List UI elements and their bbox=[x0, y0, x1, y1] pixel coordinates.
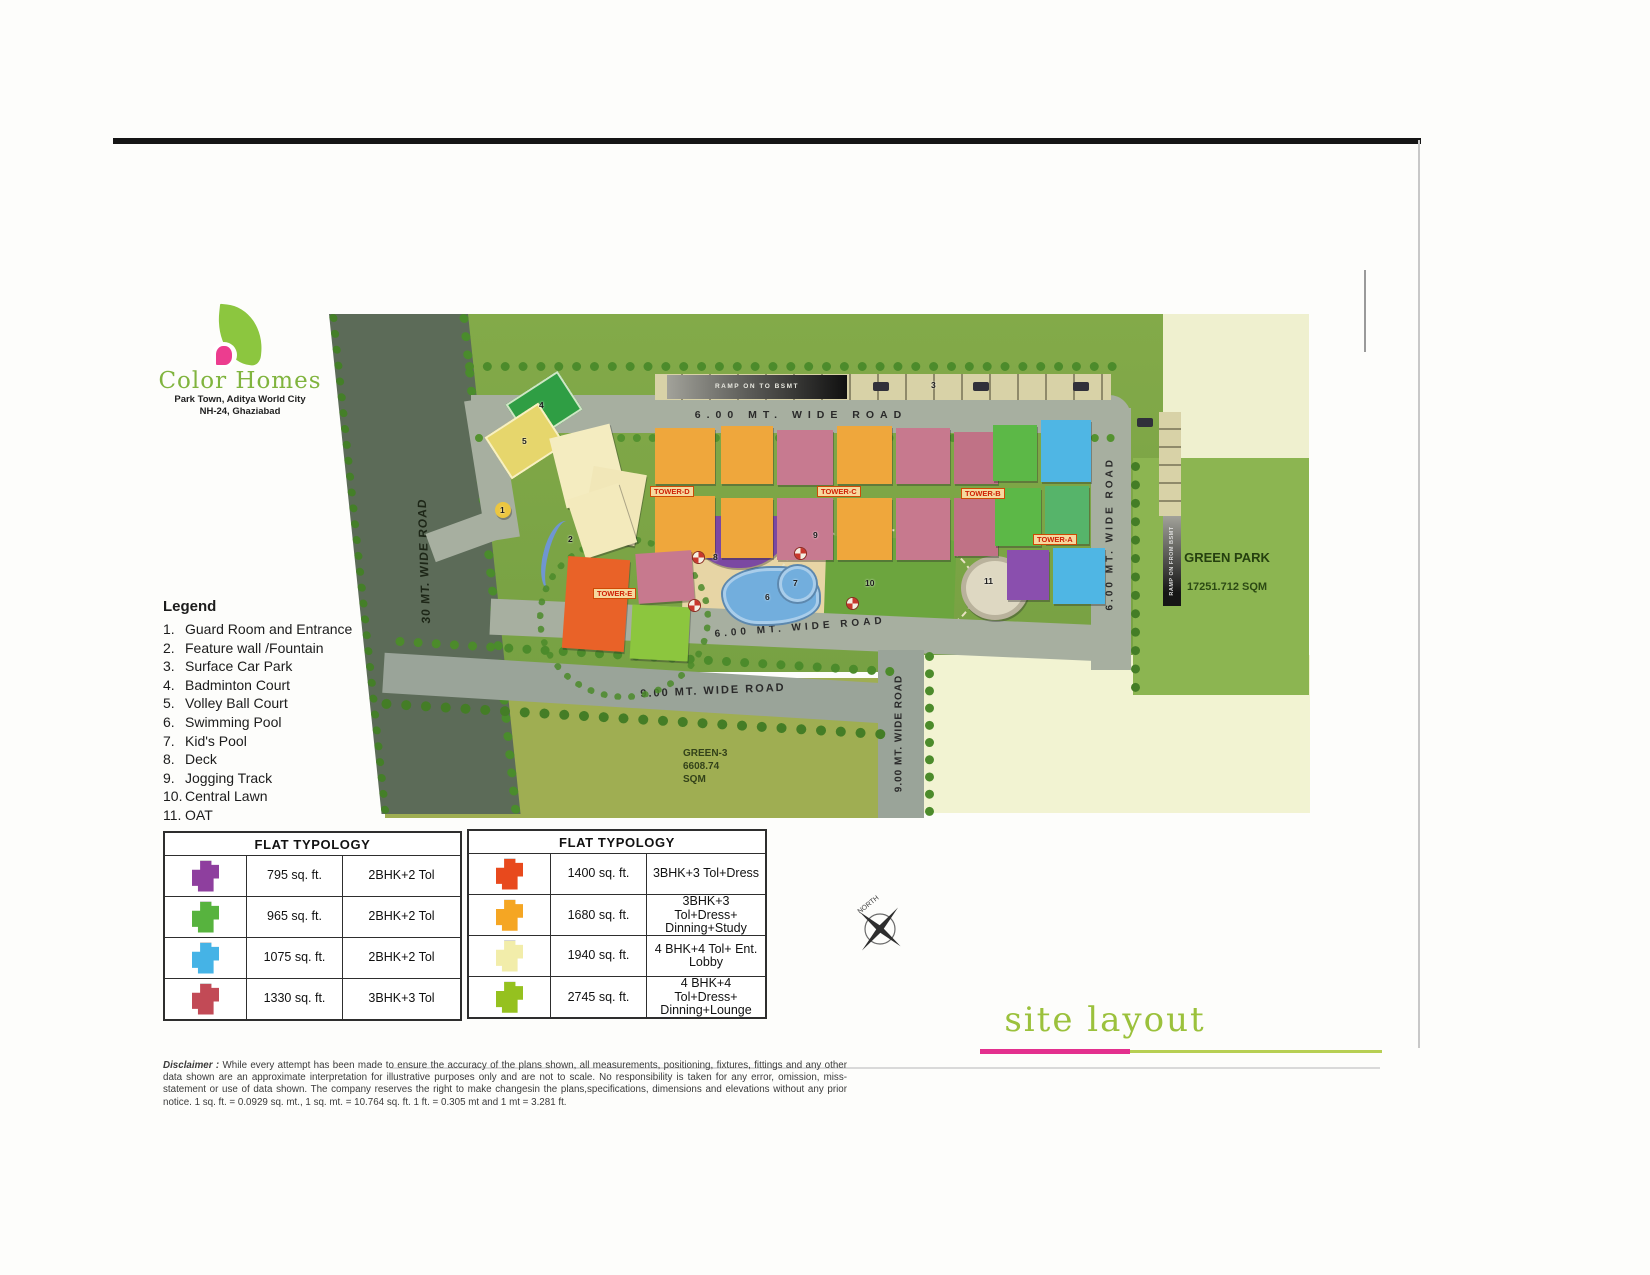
tower-b-block bbox=[896, 428, 950, 484]
flat-area: 1680 sq. ft. bbox=[551, 895, 647, 936]
basement-ramp-top: RAMP ON TO BSMT bbox=[667, 375, 847, 399]
car-icon bbox=[973, 382, 989, 391]
leaf-pink-petal bbox=[216, 346, 232, 365]
car-icon bbox=[1073, 382, 1089, 391]
flat-type: 3BHK+3 Tol+Dress+ Dinning+Study bbox=[647, 895, 765, 936]
brand-subtitle-1: Park Town, Aditya World City bbox=[150, 394, 330, 406]
tower-b-badge: TOWER-B bbox=[961, 488, 1005, 499]
table-row: 1330 sq. ft. 3BHK+3 Tol bbox=[165, 979, 460, 1019]
flat-area: 1075 sq. ft. bbox=[247, 938, 343, 978]
tower-d-block bbox=[655, 428, 715, 484]
table-row: 2745 sq. ft. 4 BHK+4 Tol+Dress+ Dinning+… bbox=[469, 977, 765, 1017]
flat-type: 3BHK+3 Tol+Dress bbox=[647, 854, 765, 894]
green3-unit-label: SQM bbox=[683, 774, 706, 785]
flat-typology-table-1: FLAT TYPOLOGY 795 sq. ft. 2BHK+2 Tol 965… bbox=[163, 831, 462, 1021]
green-park-label: GREEN PARK bbox=[1149, 550, 1305, 565]
flat-area: 795 sq. ft. bbox=[247, 856, 343, 896]
disclaimer: Disclaimer : While every attempt has bee… bbox=[163, 1060, 847, 1109]
disclaimer-label: Disclaimer : bbox=[163, 1060, 219, 1071]
marker-volleyball: 5 bbox=[522, 436, 527, 446]
flat-area: 1400 sq. ft. bbox=[551, 854, 647, 894]
umbrella-icon bbox=[847, 598, 858, 609]
tower-a-block bbox=[1007, 550, 1049, 600]
tower-b-block bbox=[896, 498, 950, 560]
tower-c-block bbox=[837, 498, 892, 560]
compass-north-label: NORTH bbox=[857, 895, 881, 916]
scanned-site-layout-page: Color Homes Park Town, Aditya World City… bbox=[0, 0, 1650, 1275]
flat-type: 2BHK+2 Tol bbox=[343, 897, 460, 937]
brand-subtitle-2: NH-24, Ghaziabad bbox=[150, 406, 330, 418]
cream-topright-area bbox=[1163, 314, 1309, 464]
tree-column bbox=[925, 652, 934, 816]
logo: Color Homes Park Town, Aditya World City… bbox=[150, 306, 330, 418]
car-icon bbox=[873, 382, 889, 391]
flat-type: 4 BHK+4 Tol+Dress+ Dinning+Lounge bbox=[647, 977, 765, 1018]
car-icon bbox=[1137, 418, 1153, 427]
flat-area: 2745 sq. ft. bbox=[551, 977, 647, 1018]
surface-car-park-right bbox=[1159, 412, 1181, 516]
flat-area: 1330 sq. ft. bbox=[247, 979, 343, 1019]
marker-swimming-pool: 6 bbox=[765, 592, 770, 602]
marker-central-lawn: 10 bbox=[865, 578, 874, 588]
tower-c-block bbox=[837, 426, 892, 484]
tree-column bbox=[1131, 462, 1140, 692]
marker-badminton: 4 bbox=[539, 400, 544, 410]
tower-d-badge: TOWER-D bbox=[650, 486, 694, 497]
road-30mt-label: 30 MT. WIDE ROAD bbox=[414, 486, 433, 637]
tower-d-block bbox=[721, 498, 773, 558]
flat-type: 4 BHK+4 Tol+ Ent. Lobby bbox=[647, 936, 765, 976]
marker-oat: 11 bbox=[984, 576, 993, 586]
flat-type: 2BHK+2 Tol bbox=[343, 856, 460, 896]
road-rightbottom-9mt-label: 9.00 MT. WIDE ROAD bbox=[894, 659, 905, 809]
flat-footprint-icon bbox=[496, 941, 523, 972]
tower-d-block bbox=[655, 496, 715, 558]
right-border-line bbox=[1418, 140, 1420, 1048]
umbrella-icon bbox=[693, 552, 704, 563]
marker-guard-room: 1 bbox=[500, 505, 505, 515]
flat-type: 2BHK+2 Tol bbox=[343, 938, 460, 978]
marker-kids-pool: 7 bbox=[793, 578, 798, 588]
marker-deck: 8 bbox=[713, 552, 718, 562]
flat-footprint-icon bbox=[496, 859, 523, 890]
tree-row bbox=[465, 362, 1117, 371]
umbrella-icon bbox=[689, 600, 700, 611]
flat-area: 965 sq. ft. bbox=[247, 897, 343, 937]
flat-footprint-icon bbox=[496, 900, 523, 931]
flat-footprint-icon bbox=[192, 902, 219, 933]
tower-c-block bbox=[777, 430, 833, 485]
table-header: FLAT TYPOLOGY bbox=[165, 833, 460, 856]
tower-d-block bbox=[721, 426, 773, 484]
road-right-6mt-label: 6.00 MT. WIDE ROAD bbox=[1105, 461, 1116, 611]
marker-jogging-track: 9 bbox=[813, 530, 818, 540]
flat-footprint-icon bbox=[496, 982, 523, 1013]
tower-e-block bbox=[630, 605, 691, 662]
ramp-top-label: RAMP ON TO BSMT bbox=[667, 383, 847, 390]
marker-fountain: 2 bbox=[568, 534, 573, 544]
tower-a-block bbox=[993, 425, 1037, 481]
marker-car-park: 3 bbox=[931, 380, 936, 390]
green3-area-label: 6608.74 bbox=[683, 761, 719, 772]
umbrella-icon bbox=[795, 548, 806, 559]
tower-b-block bbox=[954, 498, 998, 556]
site-plan-map: GREEN PARK 17251.712 SQM GREEN-3 6608.74… bbox=[325, 300, 1310, 825]
green-park-area-label: 17251.712 SQM bbox=[1149, 581, 1305, 593]
brand-title: Color Homes bbox=[150, 368, 330, 394]
page-title: site layout bbox=[930, 1000, 1280, 1040]
table-header: FLAT TYPOLOGY bbox=[469, 831, 765, 854]
disclaimer-text: While every attempt has been made to ens… bbox=[163, 1060, 847, 1108]
tower-c-badge: TOWER-C bbox=[817, 486, 861, 497]
flat-footprint-icon bbox=[192, 943, 219, 974]
flat-footprint-icon bbox=[192, 861, 219, 892]
flat-typology-table-2: FLAT TYPOLOGY 1400 sq. ft. 3BHK+3 Tol+Dr… bbox=[467, 829, 767, 1019]
tower-a-badge: TOWER-A bbox=[1033, 534, 1077, 545]
table-row: 1680 sq. ft. 3BHK+3 Tol+Dress+ Dinning+S… bbox=[469, 895, 765, 936]
tower-a-block bbox=[1041, 420, 1091, 482]
top-border-line bbox=[113, 138, 1421, 144]
compass-icon: NORTH bbox=[846, 892, 912, 958]
table-row: 1075 sq. ft. 2BHK+2 Tol bbox=[165, 938, 460, 979]
table-row: 1940 sq. ft. 4 BHK+4 Tol+ Ent. Lobby bbox=[469, 936, 765, 977]
flat-area: 1940 sq. ft. bbox=[551, 936, 647, 976]
flat-type: 3BHK+3 Tol bbox=[343, 979, 460, 1019]
tower-e-block bbox=[562, 556, 630, 652]
table-row: 965 sq. ft. 2BHK+2 Tol bbox=[165, 897, 460, 938]
tower-a-block bbox=[1053, 548, 1105, 604]
tower-b-block bbox=[954, 432, 998, 484]
logo-leaf-icon bbox=[205, 306, 275, 368]
green3-label: GREEN-3 bbox=[683, 748, 727, 759]
tower-e-block bbox=[635, 550, 694, 604]
right-edge-mark bbox=[1364, 270, 1366, 352]
underline-pink bbox=[980, 1049, 1130, 1054]
flat-footprint-icon bbox=[192, 984, 219, 1015]
underline-green bbox=[1130, 1050, 1382, 1053]
tower-e-badge: TOWER-E bbox=[593, 588, 636, 599]
table-row: 795 sq. ft. 2BHK+2 Tol bbox=[165, 856, 460, 897]
table-row: 1400 sq. ft. 3BHK+3 Tol+Dress bbox=[469, 854, 765, 895]
